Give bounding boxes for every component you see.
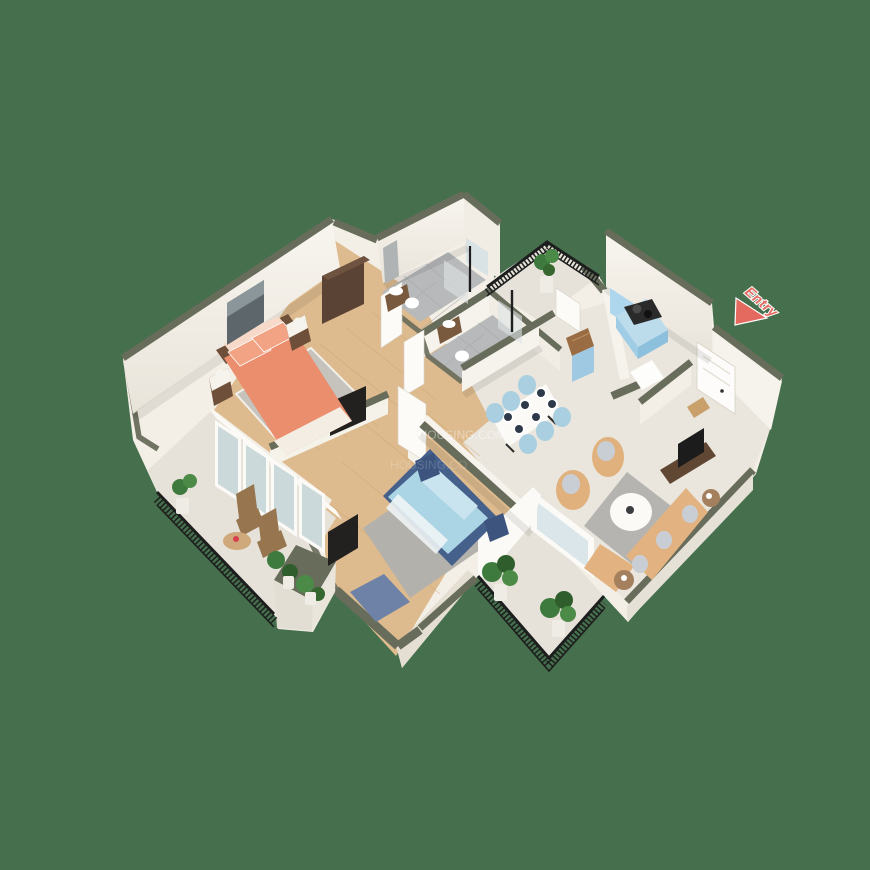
svg-text:⌂ HOUSING.COM: ⌂ HOUSING.COM — [408, 428, 506, 442]
svg-text:HOUSING.CO: HOUSING.CO — [390, 458, 467, 472]
